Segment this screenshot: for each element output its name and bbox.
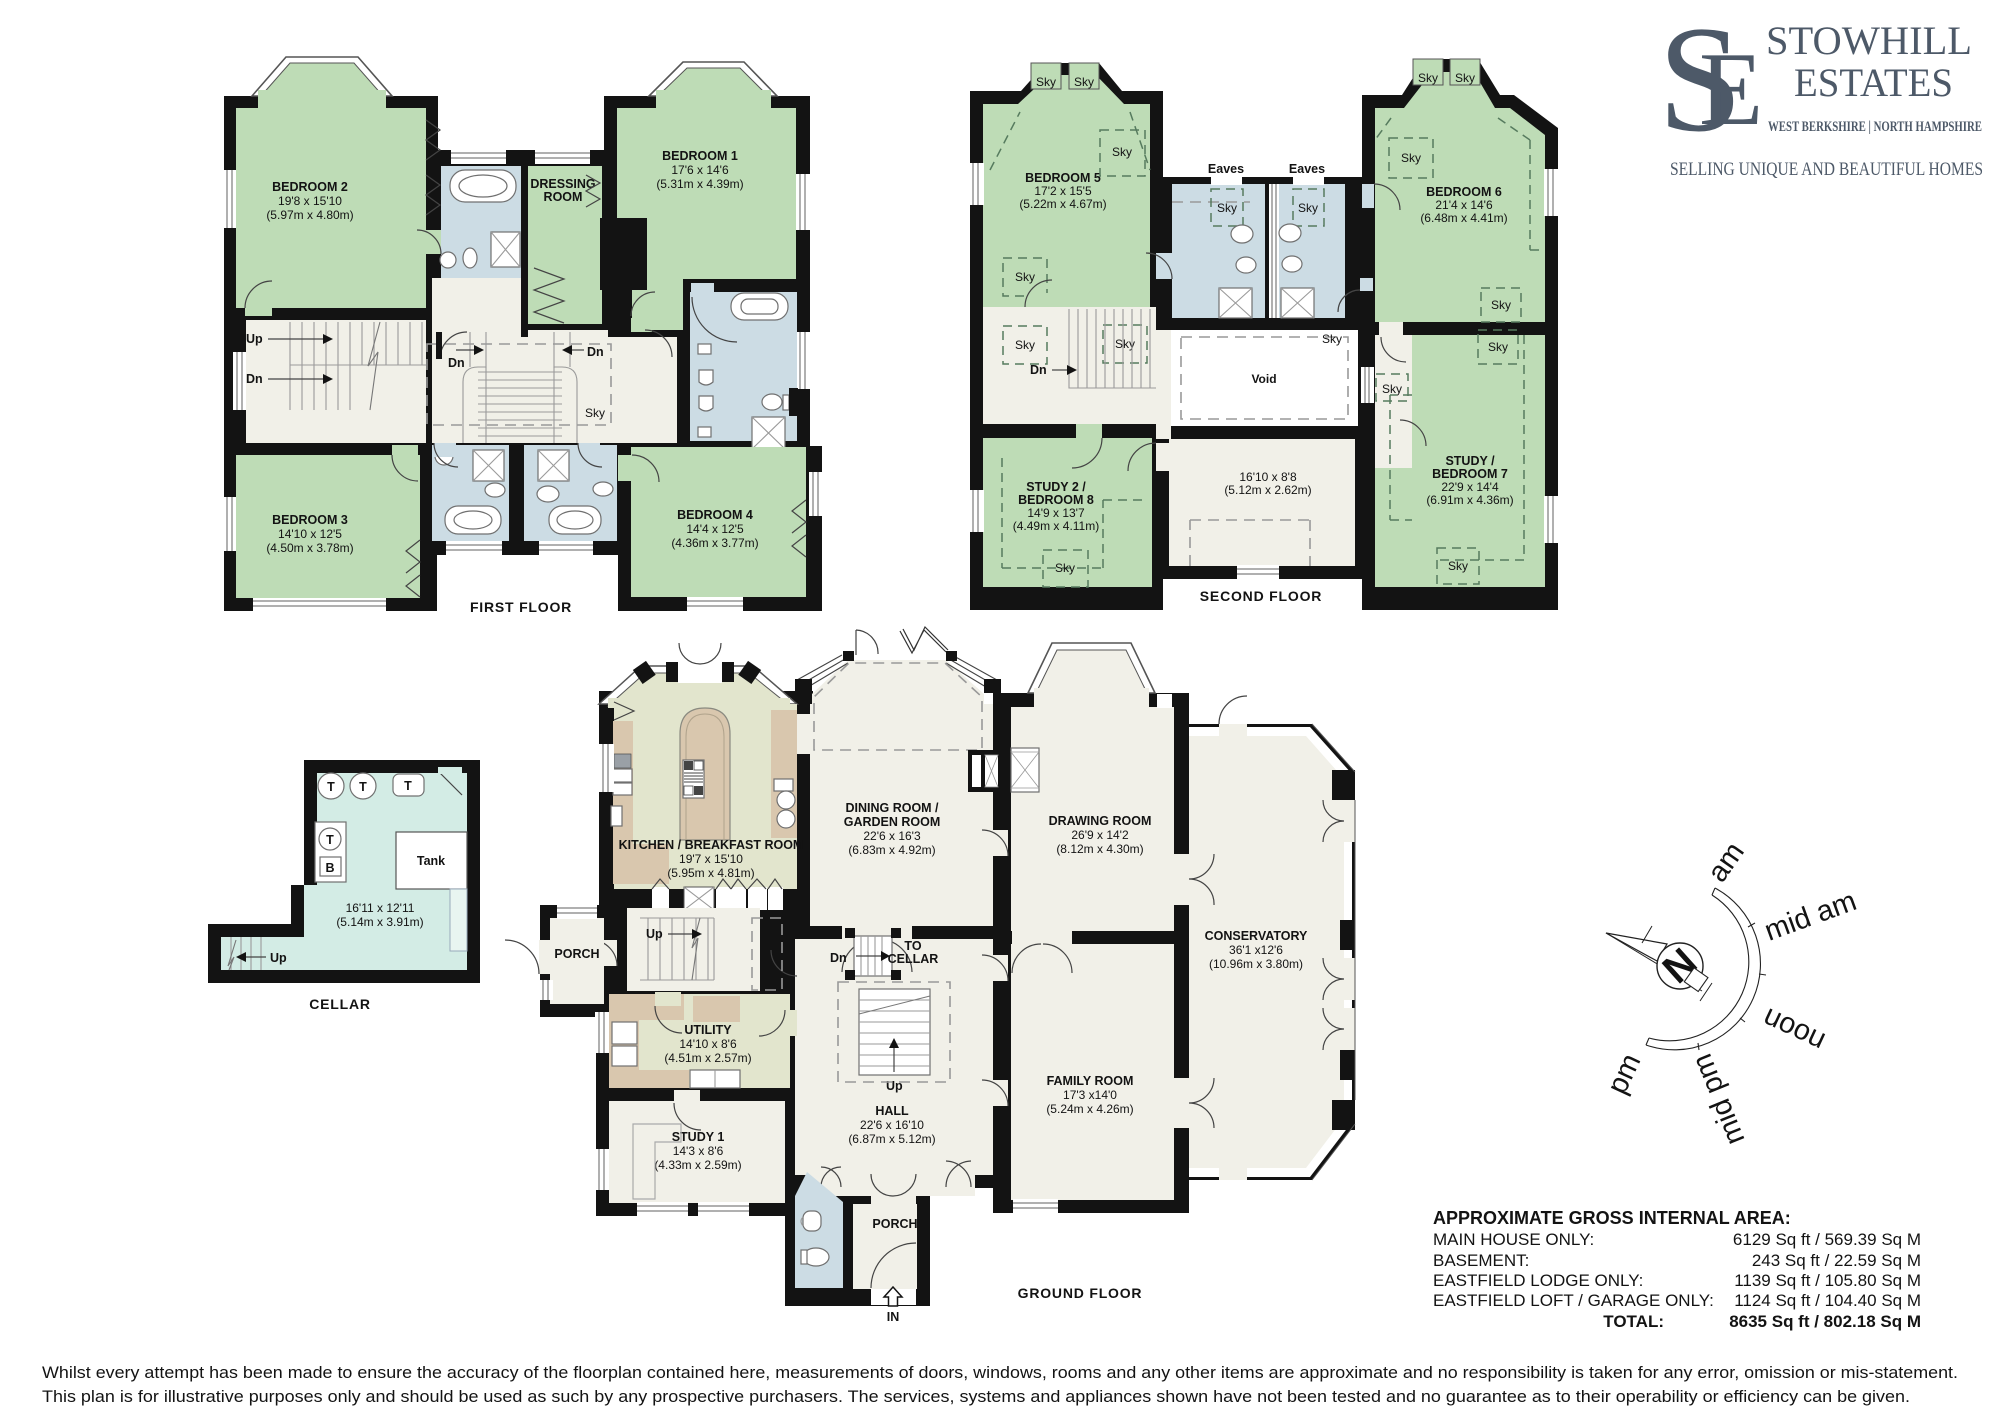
svg-text:14'9 x 13'7: 14'9 x 13'7 — [1027, 506, 1085, 520]
svg-text:KITCHEN / BREAKFAST ROOM: KITCHEN / BREAKFAST ROOM — [619, 838, 804, 852]
svg-text:Whilst every attempt has been: Whilst every attempt has been made to en… — [42, 1363, 1958, 1382]
svg-text:243 Sq ft / 22.59 Sq M: 243 Sq ft / 22.59 Sq M — [1752, 1251, 1921, 1270]
svg-text:GARDEN ROOM: GARDEN ROOM — [844, 815, 941, 829]
svg-text:(5.24m x 4.26m): (5.24m x 4.26m) — [1046, 1102, 1133, 1116]
svg-text:DINING ROOM /: DINING ROOM / — [845, 801, 939, 815]
svg-text:(10.96m x 3.80m): (10.96m x 3.80m) — [1209, 957, 1303, 971]
svg-text:16'11 x 12'11: 16'11 x 12'11 — [346, 901, 415, 915]
svg-text:22'6 x 16'10: 22'6 x 16'10 — [860, 1118, 924, 1132]
svg-text:(6.91m x 4.36m): (6.91m x 4.36m) — [1426, 493, 1513, 507]
svg-text:CELLAR: CELLAR — [309, 996, 371, 1012]
svg-text:Sky: Sky — [1015, 338, 1035, 352]
svg-text:CONSERVATORY: CONSERVATORY — [1205, 929, 1308, 943]
svg-text:19'8 x 15'10: 19'8 x 15'10 — [278, 194, 342, 208]
svg-text:T: T — [326, 833, 334, 847]
svg-text:Sky: Sky — [1298, 201, 1318, 215]
svg-text:EASTFIELD LOFT / GARAGE ONLY:: EASTFIELD LOFT / GARAGE ONLY: — [1433, 1291, 1714, 1310]
svg-text:Up: Up — [246, 332, 263, 346]
svg-text:Tank: Tank — [417, 854, 445, 868]
svg-text:HALL: HALL — [875, 1104, 909, 1118]
svg-text:(6.87m x 5.12m): (6.87m x 5.12m) — [848, 1132, 935, 1146]
svg-text:Sky: Sky — [1217, 201, 1237, 215]
svg-text:SELLING UNIQUE AND BEAUTIFUL H: SELLING UNIQUE AND BEAUTIFUL HOMES — [1670, 159, 1983, 180]
svg-text:PORCH: PORCH — [554, 947, 599, 961]
svg-text:17'3 x14'0: 17'3 x14'0 — [1063, 1088, 1117, 1102]
svg-text:(5.31m x 4.39m): (5.31m x 4.39m) — [656, 177, 743, 191]
svg-text:Sky: Sky — [1455, 71, 1475, 85]
svg-text:(5.22m x 4.67m): (5.22m x 4.67m) — [1019, 197, 1106, 211]
svg-text:(4.33m x 2.59m): (4.33m x 2.59m) — [654, 1158, 741, 1172]
svg-text:T: T — [327, 780, 335, 794]
svg-text:Sky: Sky — [1382, 382, 1402, 396]
svg-text:GROUND FLOOR: GROUND FLOOR — [1018, 1285, 1143, 1301]
svg-text:Sky: Sky — [1074, 75, 1094, 89]
svg-text:STUDY 2 /: STUDY 2 / — [1026, 480, 1086, 494]
svg-text:22'9 x 14'4: 22'9 x 14'4 — [1441, 480, 1499, 494]
svg-text:(5.97m x 4.80m): (5.97m x 4.80m) — [266, 208, 353, 222]
svg-text:APPROXIMATE GROSS INTERNAL ARE: APPROXIMATE GROSS INTERNAL AREA: — [1433, 1208, 1791, 1228]
svg-text:PORCH: PORCH — [872, 1217, 917, 1231]
svg-text:19'7 x 15'10: 19'7 x 15'10 — [679, 852, 743, 866]
svg-text:WEST BERKSHIRE | NORTH HAMPSHI: WEST BERKSHIRE | NORTH HAMPSHIRE — [1768, 119, 1982, 135]
svg-text:(4.50m x 3.78m): (4.50m x 3.78m) — [266, 541, 353, 555]
svg-text:Up: Up — [270, 951, 287, 965]
svg-text:UTILITY: UTILITY — [684, 1023, 732, 1037]
svg-text:ESTATES: ESTATES — [1794, 60, 1953, 105]
svg-text:Sky: Sky — [1112, 145, 1132, 159]
svg-text:26'9 x 14'2: 26'9 x 14'2 — [1071, 828, 1129, 842]
svg-text:16'10 x 8'8: 16'10 x 8'8 — [1239, 470, 1297, 484]
svg-text:Sky: Sky — [1055, 561, 1075, 575]
svg-text:Sky: Sky — [1322, 332, 1342, 346]
svg-text:BEDROOM 7: BEDROOM 7 — [1432, 467, 1508, 481]
svg-text:DRAWING ROOM: DRAWING ROOM — [1049, 814, 1152, 828]
svg-text:Dn: Dn — [448, 356, 465, 370]
svg-text:E: E — [1699, 30, 1763, 147]
svg-text:BEDROOM 3: BEDROOM 3 — [272, 513, 348, 527]
svg-text:BEDROOM 1: BEDROOM 1 — [662, 149, 738, 163]
svg-text:Sky: Sky — [1418, 71, 1438, 85]
svg-text:DRESSING: DRESSING — [530, 177, 595, 191]
svg-text:14'10 x 8'6: 14'10 x 8'6 — [679, 1037, 737, 1051]
svg-text:Void: Void — [1251, 372, 1276, 386]
svg-text:Up: Up — [886, 1079, 903, 1093]
svg-text:(4.51m x 2.57m): (4.51m x 2.57m) — [664, 1051, 751, 1065]
svg-text:TO: TO — [904, 939, 921, 953]
svg-text:17'6 x 14'6: 17'6 x 14'6 — [671, 163, 729, 177]
svg-text:8635 Sq ft / 802.18 Sq M: 8635 Sq ft / 802.18 Sq M — [1729, 1312, 1921, 1331]
svg-text:(5.14m x 3.91m): (5.14m x 3.91m) — [336, 915, 423, 929]
svg-text:B: B — [325, 861, 334, 875]
svg-text:(4.49m x 4.11m): (4.49m x 4.11m) — [1013, 519, 1099, 533]
svg-text:(5.95m x 4.81m): (5.95m x 4.81m) — [667, 866, 754, 880]
svg-text:Eaves: Eaves — [1289, 162, 1325, 176]
svg-text:BASEMENT:: BASEMENT: — [1433, 1251, 1529, 1270]
svg-text:Eaves: Eaves — [1208, 162, 1244, 176]
svg-text:STUDY /: STUDY / — [1445, 454, 1495, 468]
svg-text:Sky: Sky — [585, 406, 605, 420]
svg-text:CELLAR: CELLAR — [888, 952, 939, 966]
svg-text:(8.12m x 4.30m): (8.12m x 4.30m) — [1056, 842, 1143, 856]
svg-text:EASTFIELD LODGE ONLY:: EASTFIELD LODGE ONLY: — [1433, 1271, 1643, 1290]
svg-text:1124 Sq ft / 104.40 Sq M: 1124 Sq ft / 104.40 Sq M — [1734, 1291, 1921, 1310]
svg-text:Dn: Dn — [587, 345, 604, 359]
svg-text:Sky: Sky — [1448, 559, 1468, 573]
svg-text:Dn: Dn — [246, 372, 263, 386]
svg-text:14'4 x 12'5: 14'4 x 12'5 — [686, 522, 744, 536]
svg-text:6129 Sq ft / 569.39 Sq M: 6129 Sq ft / 569.39 Sq M — [1733, 1230, 1921, 1249]
svg-text:(6.83m x 4.92m): (6.83m x 4.92m) — [848, 843, 935, 857]
svg-text:17'2 x 15'5: 17'2 x 15'5 — [1034, 184, 1092, 198]
svg-text:BEDROOM 2: BEDROOM 2 — [272, 180, 348, 194]
svg-text:BEDROOM 8: BEDROOM 8 — [1018, 493, 1094, 507]
svg-text:IN: IN — [887, 1310, 900, 1324]
svg-text:FAMILY ROOM: FAMILY ROOM — [1047, 1074, 1134, 1088]
svg-text:14'10 x 12'5: 14'10 x 12'5 — [278, 527, 342, 541]
svg-text:Sky: Sky — [1036, 75, 1056, 89]
svg-text:22'6 x 16'3: 22'6 x 16'3 — [863, 829, 921, 843]
svg-text:Sky: Sky — [1491, 298, 1511, 312]
svg-text:BEDROOM 4: BEDROOM 4 — [677, 508, 753, 522]
svg-text:Sky: Sky — [1015, 270, 1035, 284]
svg-text:SECOND FLOOR: SECOND FLOOR — [1200, 588, 1322, 604]
svg-text:Up: Up — [646, 927, 663, 941]
svg-text:ROOM: ROOM — [544, 190, 583, 204]
svg-text:BEDROOM 6: BEDROOM 6 — [1426, 185, 1502, 199]
svg-text:STOWHILL: STOWHILL — [1766, 18, 1972, 63]
svg-text:This plan is for illustrative: This plan is for illustrative purposes o… — [42, 1387, 1910, 1406]
svg-text:(6.48m x 4.41m): (6.48m x 4.41m) — [1420, 211, 1507, 225]
svg-text:Dn: Dn — [830, 951, 847, 965]
svg-text:MAIN HOUSE ONLY:: MAIN HOUSE ONLY: — [1433, 1230, 1594, 1249]
svg-text:T: T — [404, 779, 412, 793]
svg-text:BEDROOM 5: BEDROOM 5 — [1025, 171, 1101, 185]
svg-text:Sky: Sky — [1401, 151, 1421, 165]
svg-text:FIRST FLOOR: FIRST FLOOR — [470, 599, 572, 615]
svg-text:Dn: Dn — [1030, 363, 1047, 377]
svg-text:21'4 x 14'6: 21'4 x 14'6 — [1435, 198, 1493, 212]
svg-text:TOTAL:: TOTAL: — [1603, 1312, 1664, 1331]
svg-text:Sky: Sky — [1488, 340, 1508, 354]
svg-text:T: T — [359, 780, 367, 794]
svg-text:14'3 x 8'6: 14'3 x 8'6 — [673, 1144, 724, 1158]
svg-text:(4.36m x 3.77m): (4.36m x 3.77m) — [671, 536, 758, 550]
svg-text:(5.12m x 2.62m): (5.12m x 2.62m) — [1224, 483, 1311, 497]
svg-text:1139 Sq ft / 105.80 Sq M: 1139 Sq ft / 105.80 Sq M — [1734, 1271, 1921, 1290]
svg-text:36'1 x12'6: 36'1 x12'6 — [1229, 943, 1283, 957]
